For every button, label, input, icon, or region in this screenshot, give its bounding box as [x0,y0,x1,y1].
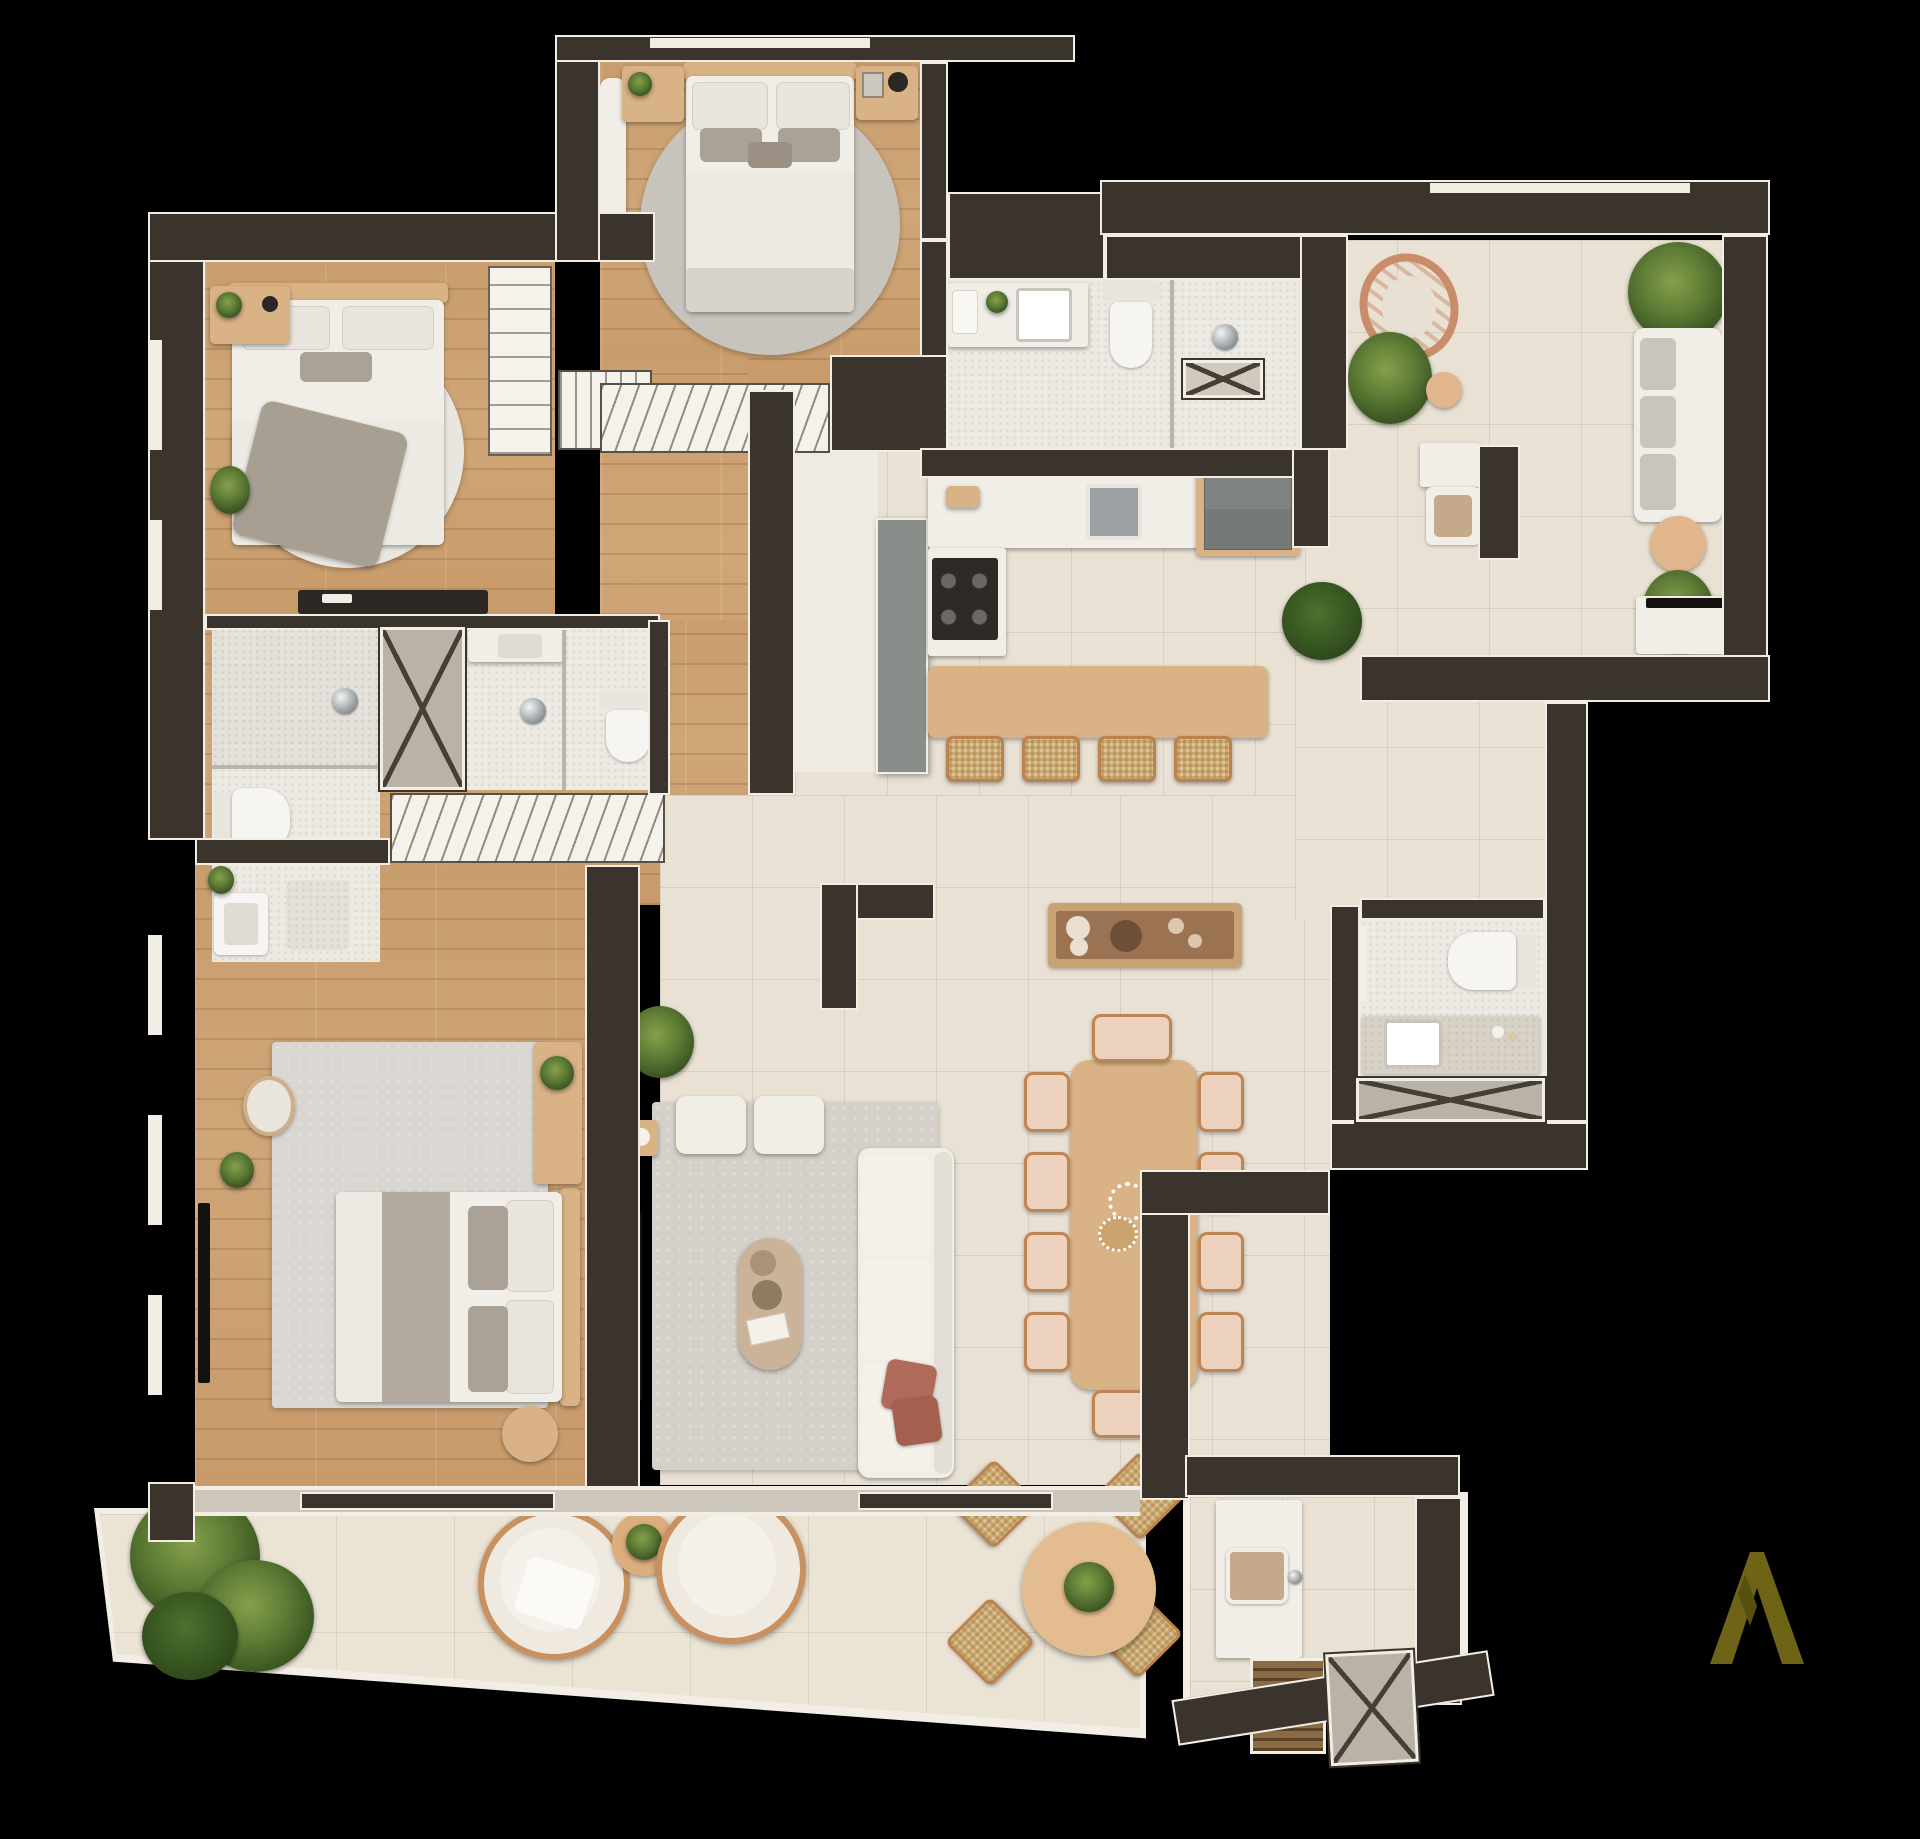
master-gray-runner [380,1192,450,1402]
sliding-door-panel-1 [300,1492,555,1510]
master-duvet-edge [336,1192,382,1402]
brand-logo-a: A [1698,1552,1816,1664]
wall-outer-right-top [1722,235,1768,665]
mainbath-x-cabinet [1183,360,1263,398]
powder-basin [1384,1020,1442,1068]
sitting-plant-left [1348,332,1432,424]
dining-chair-left-4 [1024,1312,1070,1372]
window-master-left-1 [148,935,162,1035]
powder-toilet [1448,932,1516,990]
nook-sink [1226,1548,1288,1604]
mainbath-toilet [1110,302,1152,368]
suite2-floor-plant [210,466,250,514]
partition-l-vertical [820,883,858,1010]
suite2-clock [262,296,278,312]
sitting-sofa-cushion-1 [1640,338,1676,390]
buffet-dish-2 [1188,934,1202,948]
suite2-shower-head [332,688,358,714]
island-stool-3 [1098,736,1156,782]
wall-bath-sitting-divider [1300,235,1348,450]
coffee-table-deco-1 [750,1250,776,1276]
hall-green-shrub [1282,582,1362,660]
kitchen-left-strip [795,448,878,772]
dining-chair-right-3 [1198,1232,1244,1292]
suite2-basin-inner [224,903,258,945]
nook-shaft [1325,1650,1419,1766]
window-suite2-left-1 [148,340,162,450]
master-gray-pillow-top [468,1206,508,1290]
wall-sitting-bottom [1360,655,1770,702]
dining-centerpiece-bowl [1098,1216,1138,1252]
suite1-frame-deco [862,72,884,98]
kitchen-cooktop [932,558,998,640]
hanging-chair-cushion [1382,276,1436,338]
buffet-bowl [1110,920,1142,952]
buffet-plate-1 [1066,916,1090,940]
lounge-chair-2-cushion [678,1514,776,1616]
laundry-counter [1420,443,1480,487]
hallway-closet [390,793,665,863]
suite1-pillow-left [692,82,768,130]
buffet-plate-2 [1070,938,1088,956]
master-tv [198,1203,210,1383]
living-ottoman-1 [676,1096,746,1154]
wall-suite1bath-right [648,620,670,795]
island-stool-4 [1174,736,1232,782]
wall-suite1-left [555,35,600,262]
suite1-lamp [888,72,908,92]
wall-mainbath-top [1105,235,1305,280]
wall-under-shaft [1330,1122,1588,1170]
suite1-shower-glass [562,627,566,790]
floor-plan: A [0,0,1920,1839]
dining-chair-right-1 [1198,1072,1244,1132]
master-corner-plant [208,866,234,894]
kitchen-sink [1086,484,1142,540]
coffee-table-deco-2 [752,1280,782,1310]
powder-shaft [1356,1078,1545,1122]
dining-chair-right-4 [1198,1312,1244,1372]
mainbath-shower-glass [1170,280,1174,448]
sliding-door-panel-2 [858,1492,1053,1510]
wall-laundry-stub [1478,445,1520,560]
laundry-sink-basin [1434,495,1472,537]
sitting-coffee-table [1650,516,1706,572]
wall-suite1-right [920,62,948,240]
window-sitting-top [1430,183,1690,193]
wall-dining-right [1140,1170,1190,1500]
powder-toilet-tank [1516,934,1536,988]
sitting-side-table [1426,372,1462,408]
dining-chair-left-1 [1024,1072,1070,1132]
powder-bottle-2 [1508,1032,1518,1042]
dining-chair-left-2 [1024,1152,1070,1212]
wall-powder-top [1360,898,1545,920]
wall-nook-top [1185,1455,1460,1497]
wall-dining-right-stub [1140,1170,1330,1215]
suite1-pillow-right [776,82,850,130]
sitting-sofa-cushion-3 [1640,454,1676,510]
suite2-nightstand-plant [216,292,242,318]
wall-living-master [585,865,640,1500]
suite1-basin [498,634,542,658]
wall-outer-right-mid [1545,702,1588,1122]
refrigerator [1204,472,1292,550]
suite2-shower-glass [212,765,380,769]
nook-faucet [1288,1570,1302,1584]
window-master-left-2 [148,1115,162,1225]
master-side-table [502,1406,558,1462]
master-desk-plant [540,1056,574,1090]
terrace-table-plant [1064,1562,1114,1612]
suite2-bath-mat [286,880,350,950]
mainbath-shower-head [1212,324,1238,350]
window-suite2-left-2 [148,520,162,610]
suite1-closet [600,383,830,453]
wall-master-top [195,838,390,865]
mainbath-toilet-tank [1102,281,1160,301]
terrace-palm-3 [142,1592,238,1680]
sofa-terracotta-pillow-2 [891,1395,943,1447]
wall-master-bottom-corner [148,1482,195,1542]
master-pillow-bottom [506,1300,554,1394]
master-pouf [243,1076,295,1136]
mainbath-basin [1016,288,1072,342]
wall-suite1-bottom [830,355,948,452]
master-bed-headboard [560,1188,580,1406]
wall-corridor-kitchen [748,390,795,795]
suite2-wardrobe [488,266,552,456]
suite1-shower-head [520,698,546,724]
island-stool-1 [946,736,1004,782]
wall-topright-jog [948,192,1105,280]
central-shaft [380,627,465,790]
dining-chair-left-3 [1024,1232,1070,1292]
window-master-left-3 [148,1295,162,1395]
master-pillow-top [506,1200,554,1292]
powder-door-leaf [1360,925,1366,1001]
kitchen-island [928,666,1268,738]
wall-kitchen-right [1292,448,1330,548]
suite2-pillow-right [342,306,434,350]
suite2-accent-pillow [300,352,372,382]
dining-chair-head-top [1092,1014,1172,1062]
window-suite1-top [650,38,870,48]
suite1-nightstand-plant [628,72,652,96]
wall-mainbath-bottom [920,448,1330,478]
sitting-plant-topright [1628,242,1728,342]
island-stool-2 [1022,736,1080,782]
living-ottoman-2 [754,1096,824,1154]
buffet-dish-1 [1168,918,1184,934]
living-sofa-seat-1 [862,1156,930,1256]
powder-bottle-1 [1492,1026,1504,1038]
suite1-small-pillow [748,142,792,168]
sitting-sofa-cushion-2 [1640,396,1676,448]
kitchen-cutting-board [946,486,980,508]
suite1-foot-blanket [686,268,854,312]
mainbath-towel [952,290,978,334]
kitchen-tall-cabinet [876,518,928,774]
master-floor-plant [220,1152,254,1188]
suite1-toilet [606,710,650,762]
mainbath-plant [986,291,1008,313]
master-gray-pillow-bottom [468,1306,508,1392]
suite2-desk-items [322,594,352,603]
living-sofa-seat-2 [862,1260,930,1360]
